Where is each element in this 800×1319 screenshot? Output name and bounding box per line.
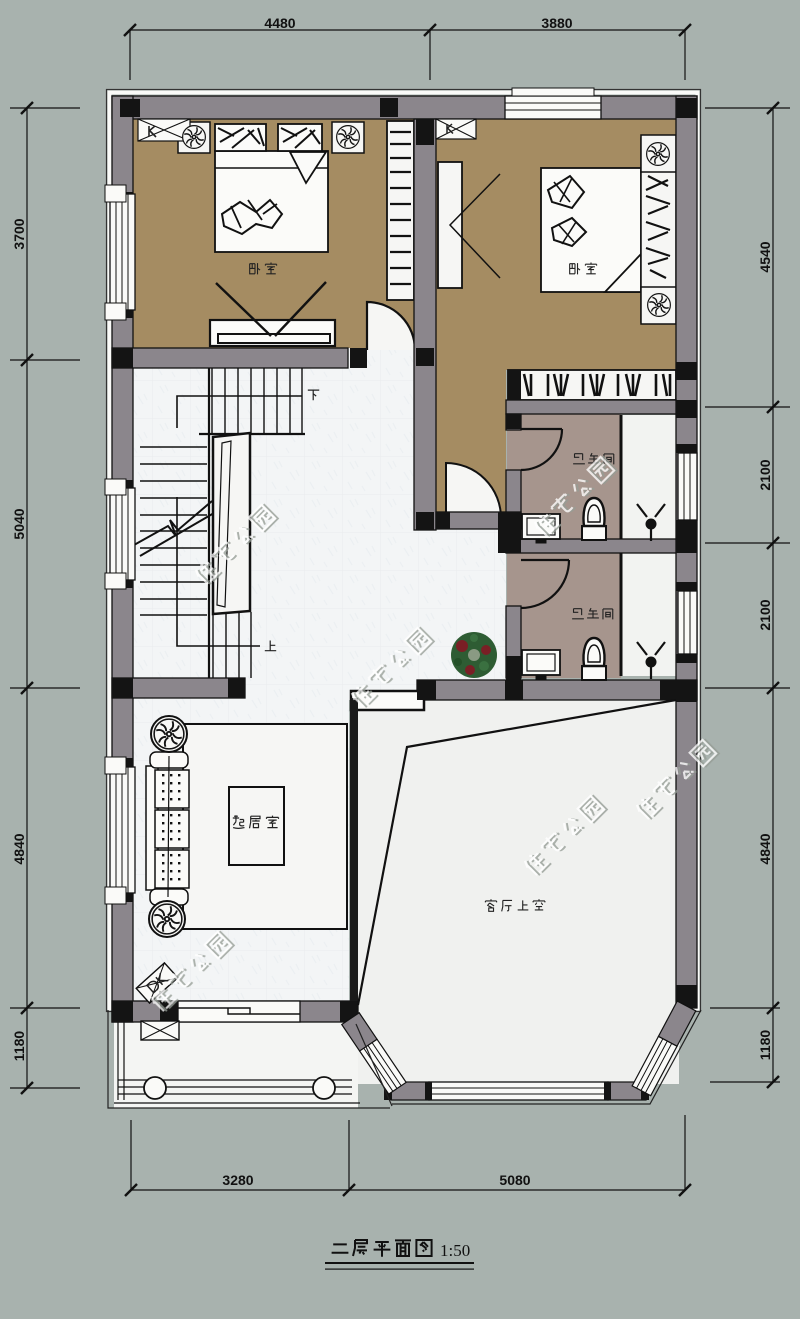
svg-text:1180: 1180 <box>11 1031 27 1062</box>
svg-text:4480: 4480 <box>264 15 295 31</box>
svg-text:2100: 2100 <box>757 459 773 490</box>
svg-text:5040: 5040 <box>11 508 27 539</box>
svg-text:1:50: 1:50 <box>440 1241 470 1260</box>
svg-text:3280: 3280 <box>222 1172 253 1188</box>
svg-text:4840: 4840 <box>11 833 27 864</box>
svg-text:1180: 1180 <box>757 1030 773 1061</box>
svg-text:2100: 2100 <box>757 599 773 630</box>
svg-text:3880: 3880 <box>541 15 572 31</box>
svg-text:4540: 4540 <box>757 241 773 272</box>
svg-text:5080: 5080 <box>499 1172 530 1188</box>
svg-text:3700: 3700 <box>11 218 27 249</box>
svg-text:4840: 4840 <box>757 833 773 864</box>
